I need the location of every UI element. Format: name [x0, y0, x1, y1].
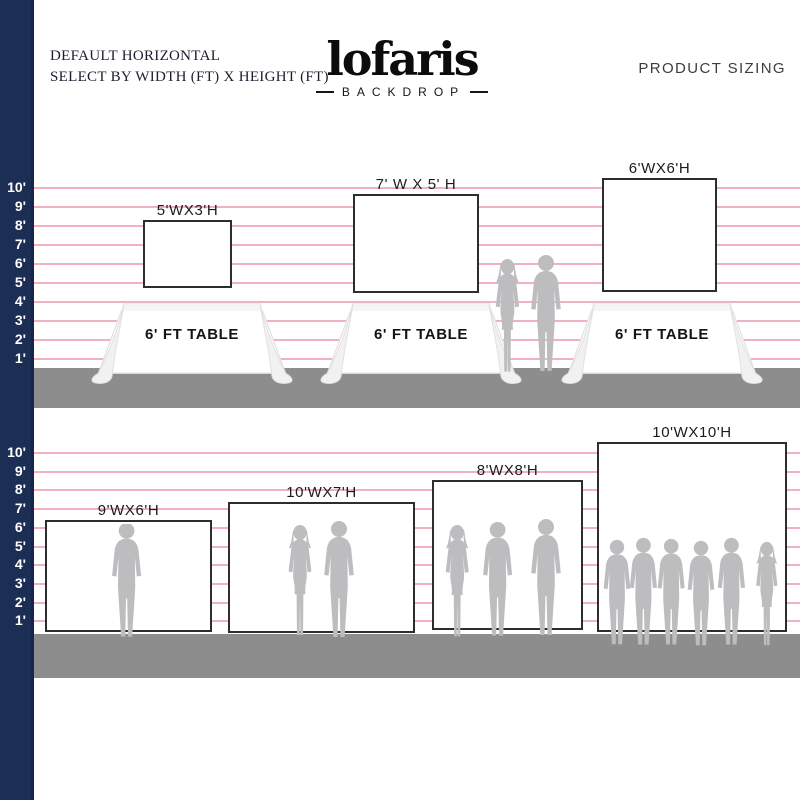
size-label-8x8: 8'WX8'H	[412, 462, 603, 479]
size-label-6x6: 6'WX6'H	[582, 160, 737, 177]
foot-label-row2-6ft: 6'	[0, 519, 26, 535]
size-label-5x3: 5'WX3'H	[123, 202, 252, 219]
pair-silhouette-icon	[281, 518, 361, 640]
table-2-label: 6' FT TABLE	[346, 326, 496, 343]
orientation-note-line1: DEFAULT HORIZONTAL	[50, 46, 329, 67]
orientation-note: DEFAULT HORIZONTAL SELECT BY WIDTH (FT) …	[50, 46, 329, 88]
foot-label-row2-9ft: 9'	[0, 463, 26, 479]
foot-label-row2-8ft: 8'	[0, 481, 26, 497]
size-label-10x10: 10'WX10'H	[577, 424, 800, 441]
brand-tagline-text: BACKDROP	[339, 85, 465, 99]
foot-label-row1-8ft: 8'	[0, 217, 26, 233]
size-label-9x6: 9'WX6'H	[25, 502, 232, 519]
foot-label-row1-3ft: 3'	[0, 312, 26, 328]
table-1-label: 6' FT TABLE	[117, 326, 267, 343]
foot-label-row1-6ft: 6'	[0, 255, 26, 271]
product-sizing-infographic: DEFAULT HORIZONTAL SELECT BY WIDTH (FT) …	[0, 0, 800, 800]
brand-logo: lofaris BACKDROP	[302, 34, 502, 99]
foot-label-row2-5ft: 5'	[0, 538, 26, 554]
foot-label-row2-4ft: 4'	[0, 556, 26, 572]
foot-label-row1-10ft: 10'	[0, 179, 26, 195]
backdrop-rect-5x3	[143, 220, 232, 288]
ruler-bar	[0, 0, 34, 800]
brand-name: lofaris	[302, 34, 502, 84]
size-label-10x7: 10'WX7'H	[208, 484, 435, 501]
group-silhouette-icon	[599, 537, 789, 649]
foot-label-row2-10ft: 10'	[0, 444, 26, 460]
tagline-dash-left-icon	[316, 91, 334, 93]
tagline-dash-right-icon	[470, 91, 488, 93]
trio-silhouette-icon	[438, 516, 573, 642]
foot-label-row2-3ft: 3'	[0, 575, 26, 591]
product-sizing-title: PRODUCT SIZING	[638, 60, 786, 77]
foot-label-row1-5ft: 5'	[0, 274, 26, 290]
backdrop-rect-7x5	[353, 194, 479, 293]
brand-tagline: BACKDROP	[302, 85, 502, 99]
foot-label-row2-2ft: 2'	[0, 594, 26, 610]
backdrop-rect-6x6	[602, 178, 717, 292]
single-man-silhouette-icon	[102, 524, 152, 640]
foot-label-row1-1ft: 1'	[0, 350, 26, 366]
foot-label-row1-7ft: 7'	[0, 236, 26, 252]
foot-label-row2-7ft: 7'	[0, 500, 26, 516]
couple-silhouette-icon	[486, 252, 570, 376]
foot-label-row1-4ft: 4'	[0, 293, 26, 309]
foot-label-row1-2ft: 2'	[0, 331, 26, 347]
orientation-note-line2: SELECT BY WIDTH (FT) X HEIGHT (FT)	[50, 67, 329, 88]
size-label-7x5: 7' W X 5' H	[333, 176, 499, 193]
foot-label-row1-9ft: 9'	[0, 198, 26, 214]
table-3-label: 6' FT TABLE	[587, 326, 737, 343]
foot-label-row2-1ft: 1'	[0, 612, 26, 628]
